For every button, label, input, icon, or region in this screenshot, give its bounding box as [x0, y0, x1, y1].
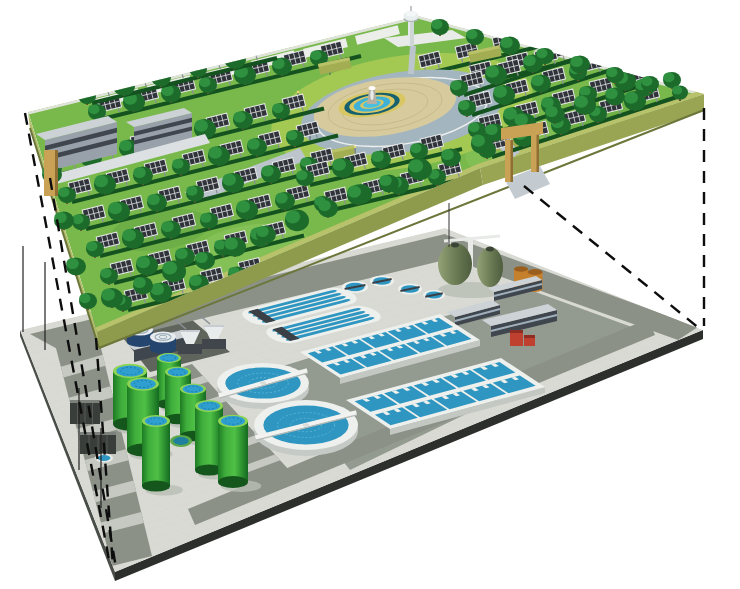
solar-panel	[580, 34, 605, 56]
tree	[332, 158, 354, 178]
tree	[574, 95, 596, 115]
small-thickener-tank	[423, 290, 445, 300]
ground-pit	[170, 435, 192, 447]
fountain-spray	[369, 86, 376, 90]
solar-panel	[566, 15, 591, 37]
solar-panel	[529, 24, 554, 46]
green-storage-tank	[218, 415, 248, 488]
tree	[408, 159, 432, 181]
circular-clarifier	[254, 400, 358, 456]
solar-panel	[617, 25, 642, 47]
clarifier-hub	[303, 423, 309, 426]
tree	[485, 65, 507, 85]
screen-unit	[80, 432, 116, 454]
solar-panel	[603, 6, 628, 28]
tree	[222, 173, 244, 193]
tree	[108, 202, 130, 222]
tree	[493, 85, 515, 105]
tree	[94, 175, 116, 195]
tree	[285, 210, 309, 232]
tree	[162, 261, 186, 283]
small-thickener-tank	[398, 284, 422, 295]
tree	[122, 229, 144, 249]
tree	[101, 288, 123, 308]
tree	[150, 283, 172, 303]
tree	[224, 237, 246, 257]
small-thickener-tank	[370, 276, 394, 287]
tree	[224, 49, 246, 69]
screen-unit	[70, 400, 100, 424]
facility-cutaway-illustration	[0, 0, 740, 589]
dome-tank	[150, 332, 176, 355]
tree	[236, 200, 258, 220]
clarifier-hub	[260, 381, 266, 384]
tree	[208, 146, 230, 166]
solar-park-over-treatment-plant-scene	[0, 0, 740, 589]
tree	[136, 256, 158, 276]
tree	[347, 185, 369, 205]
tree	[113, 76, 135, 96]
green-storage-tank	[142, 415, 170, 491]
